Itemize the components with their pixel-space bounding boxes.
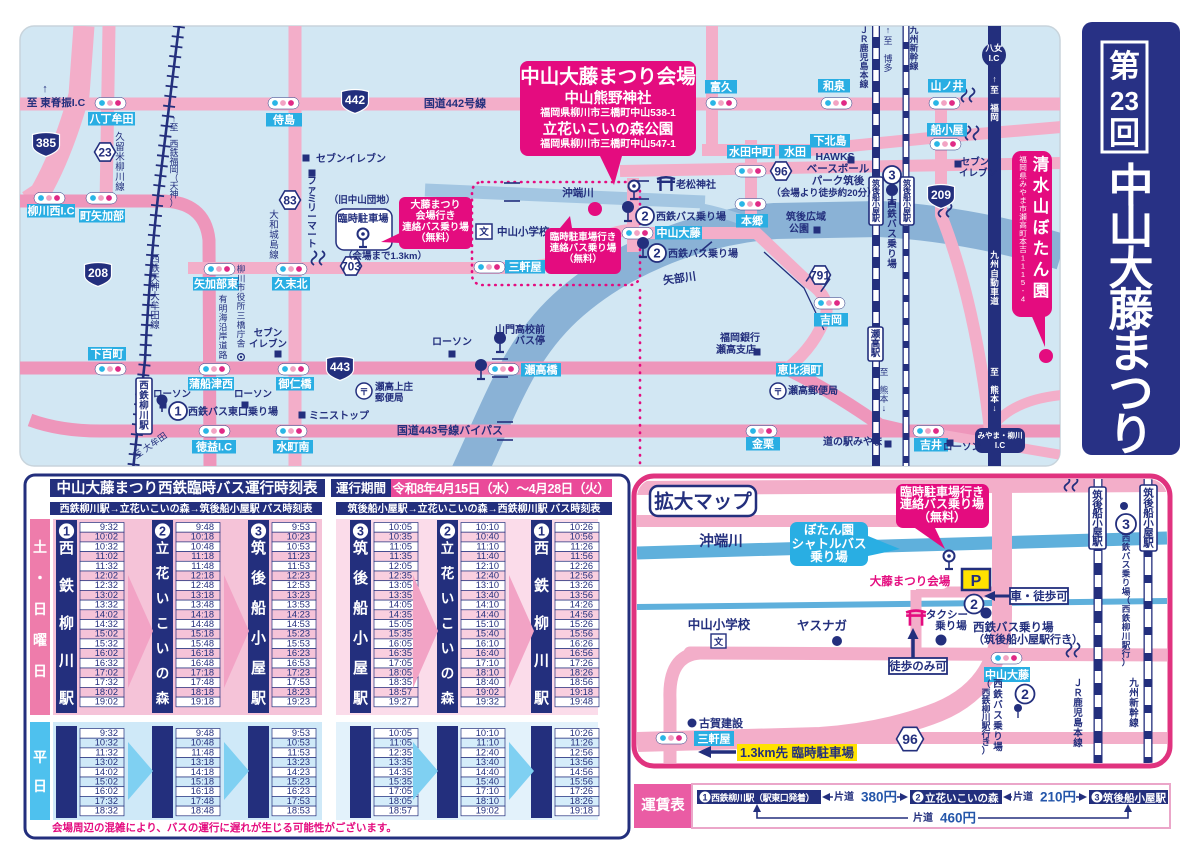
svg-text:柳川西I.C: 柳川西I.C bbox=[27, 204, 74, 218]
svg-text:1: 1 bbox=[702, 793, 707, 803]
svg-text:筑後船小屋駅: 筑後船小屋駅 bbox=[902, 178, 912, 223]
svg-text:徒歩のみ可: 徒歩のみ可 bbox=[888, 659, 947, 673]
svg-text:18:10: 18:10 bbox=[476, 668, 499, 678]
svg-text:イレブン: イレブン bbox=[249, 338, 287, 350]
svg-text:12:35: 12:35 bbox=[389, 571, 412, 581]
svg-text:16:48: 16:48 bbox=[191, 658, 214, 668]
svg-text:国道443号線バイパス: 国道443号線バイパス bbox=[397, 423, 503, 437]
svg-text:11:53: 11:53 bbox=[287, 561, 310, 571]
svg-text:16:18: 16:18 bbox=[191, 786, 214, 796]
svg-text:16:02: 16:02 bbox=[95, 648, 118, 658]
svg-text:18:48: 18:48 bbox=[191, 806, 214, 816]
svg-text:11:48: 11:48 bbox=[191, 747, 214, 757]
svg-text:14:53: 14:53 bbox=[287, 619, 310, 629]
svg-text:14:26: 14:26 bbox=[570, 600, 593, 610]
svg-text:10:32: 10:32 bbox=[95, 541, 118, 551]
svg-text:1.3km先 臨時駐車場: 1.3km先 臨時駐車場 bbox=[740, 745, 854, 760]
svg-text:209: 209 bbox=[931, 188, 951, 202]
svg-text:23: 23 bbox=[1110, 86, 1139, 116]
svg-text:11:10: 11:10 bbox=[476, 541, 499, 551]
svg-text:9:48: 9:48 bbox=[196, 522, 214, 532]
svg-text:15:02: 15:02 bbox=[95, 777, 118, 787]
svg-text:I.C: I.C bbox=[995, 441, 1005, 450]
svg-text:11:23: 11:23 bbox=[287, 551, 310, 561]
svg-text:清水山ぼたん園: 清水山ぼたん園 bbox=[1033, 155, 1050, 300]
svg-text:16:26: 16:26 bbox=[570, 638, 593, 648]
svg-text:↑至 西鉄福岡（天神）: ↑至 西鉄福岡（天神） bbox=[169, 114, 178, 208]
svg-text:12:56: 12:56 bbox=[570, 747, 593, 757]
svg-text:14:32: 14:32 bbox=[95, 619, 118, 629]
svg-text:208: 208 bbox=[88, 266, 108, 280]
svg-text:13:35: 13:35 bbox=[389, 590, 412, 600]
svg-text:セブンイレブン: セブンイレブン bbox=[316, 152, 386, 165]
svg-text:瀬高駅: 瀬高駅 bbox=[871, 329, 881, 360]
svg-text:18:32: 18:32 bbox=[95, 806, 118, 816]
svg-text:16:02: 16:02 bbox=[95, 786, 118, 796]
svg-text:15:10: 15:10 bbox=[476, 619, 499, 629]
svg-text:14:05: 14:05 bbox=[389, 600, 412, 610]
svg-text:14:02: 14:02 bbox=[95, 767, 118, 777]
svg-text:15:18: 15:18 bbox=[191, 777, 214, 787]
svg-text:13:35: 13:35 bbox=[389, 757, 412, 767]
svg-text:中山大藤: 中山大藤 bbox=[657, 226, 702, 240]
svg-text:12:35: 12:35 bbox=[389, 747, 412, 757]
svg-text:13:40: 13:40 bbox=[476, 757, 499, 767]
svg-text:13:18: 13:18 bbox=[191, 757, 214, 767]
svg-text:12:26: 12:26 bbox=[570, 561, 593, 571]
svg-text:（無料）: （無料） bbox=[416, 231, 456, 244]
svg-text:八女: 八女 bbox=[984, 43, 1003, 53]
svg-text:13:56: 13:56 bbox=[570, 757, 593, 767]
svg-text:18:10: 18:10 bbox=[476, 796, 499, 806]
svg-text:13:32: 13:32 bbox=[95, 600, 118, 610]
svg-text:17:02: 17:02 bbox=[95, 668, 118, 678]
svg-text:18:02: 18:02 bbox=[95, 687, 118, 697]
svg-text:17:53: 17:53 bbox=[287, 796, 310, 806]
svg-text:15:26: 15:26 bbox=[570, 619, 593, 629]
svg-text:15:40: 15:40 bbox=[476, 777, 499, 787]
svg-text:中山小学校: 中山小学校 bbox=[688, 617, 751, 632]
svg-text:福岡銀行: 福岡銀行 bbox=[719, 331, 760, 344]
svg-text:2: 2 bbox=[444, 525, 451, 539]
svg-text:13:02: 13:02 bbox=[95, 590, 118, 600]
svg-text:古賀建設: 古賀建設 bbox=[699, 716, 744, 730]
svg-text:片道: 片道 bbox=[834, 790, 854, 803]
svg-text:乗り場: 乗り場 bbox=[934, 619, 967, 632]
svg-text:12:56: 12:56 bbox=[570, 571, 593, 581]
svg-text:12:40: 12:40 bbox=[476, 747, 499, 757]
svg-text:15:18: 15:18 bbox=[191, 629, 214, 639]
svg-text:19:27: 19:27 bbox=[389, 697, 412, 707]
svg-text:19:32: 19:32 bbox=[476, 697, 499, 707]
svg-text:中山大藤: 中山大藤 bbox=[985, 667, 1030, 681]
svg-text:西鉄バス東口乗り場: 西鉄バス東口乗り場 bbox=[188, 405, 278, 418]
svg-text:徳益I.C: 徳益I.C bbox=[195, 440, 232, 454]
svg-text:三軒屋: 三軒屋 bbox=[509, 260, 542, 274]
svg-text:16:23: 16:23 bbox=[287, 786, 310, 796]
svg-text:筑後船小屋駅: 筑後船小屋駅 bbox=[1091, 489, 1103, 549]
svg-text:12:48: 12:48 bbox=[191, 580, 214, 590]
svg-text:連絡バス乗り場: 連絡バス乗り場 bbox=[402, 221, 469, 233]
svg-text:13:56: 13:56 bbox=[570, 590, 593, 600]
svg-text:13:02: 13:02 bbox=[95, 757, 118, 767]
svg-text:96: 96 bbox=[902, 731, 918, 747]
svg-text:瀬高郵便局: 瀬高郵便局 bbox=[788, 384, 838, 397]
svg-text:蒲船津西: 蒲船津西 bbox=[189, 377, 233, 391]
svg-text:14:18: 14:18 bbox=[191, 767, 214, 777]
svg-text:下百町: 下百町 bbox=[91, 348, 124, 361]
svg-text:金栗: 金栗 bbox=[751, 437, 774, 451]
svg-text:本郷: 本郷 bbox=[741, 214, 763, 228]
svg-text:1: 1 bbox=[63, 525, 70, 539]
svg-text:11:10: 11:10 bbox=[476, 738, 499, 748]
svg-text:↑: ↑ bbox=[886, 25, 891, 35]
svg-text:ヤスナガ: ヤスナガ bbox=[797, 618, 848, 633]
svg-text:12:18: 12:18 bbox=[191, 571, 214, 581]
svg-text:442: 442 bbox=[345, 93, 365, 107]
svg-text:96: 96 bbox=[774, 164, 788, 178]
svg-text:ローソン: ローソン bbox=[234, 389, 272, 400]
svg-text:3: 3 bbox=[255, 525, 262, 539]
svg-text:14:40: 14:40 bbox=[476, 609, 499, 619]
svg-text:16:53: 16:53 bbox=[287, 658, 310, 668]
svg-text:12:05: 12:05 bbox=[389, 561, 412, 571]
svg-text:14:35: 14:35 bbox=[389, 609, 412, 619]
svg-text:15:56: 15:56 bbox=[570, 629, 593, 639]
svg-text:18:23: 18:23 bbox=[287, 687, 310, 697]
svg-text:国道442号線: 国道442号線 bbox=[424, 96, 486, 110]
svg-text:10:56: 10:56 bbox=[570, 532, 593, 542]
svg-text:15:40: 15:40 bbox=[476, 629, 499, 639]
svg-text:セブン: セブン bbox=[254, 327, 283, 339]
svg-text:至 東脊振I.C: 至 東脊振I.C bbox=[27, 96, 86, 109]
svg-text:シャトルバス: シャトルバス bbox=[791, 537, 866, 551]
svg-text:17:26: 17:26 bbox=[570, 786, 593, 796]
svg-text:19:18: 19:18 bbox=[570, 687, 593, 697]
svg-text:9:32: 9:32 bbox=[100, 728, 118, 738]
svg-text:10:32: 10:32 bbox=[95, 738, 118, 748]
svg-text:3: 3 bbox=[1122, 516, 1130, 532]
svg-text:筑後広域: 筑後広域 bbox=[786, 210, 826, 223]
svg-text:西鉄バス乗り場: 西鉄バス乗り場 bbox=[993, 679, 1003, 753]
svg-text:11:32: 11:32 bbox=[95, 747, 118, 757]
svg-text:ローソン: ローソン bbox=[432, 337, 472, 348]
svg-text:10:10: 10:10 bbox=[476, 728, 499, 738]
svg-text:中山大藤まつり会場: 中山大藤まつり会場 bbox=[520, 65, 696, 88]
svg-text:210円: 210円 bbox=[1040, 790, 1076, 805]
svg-text:パーク筑後: パーク筑後 bbox=[812, 174, 865, 187]
svg-text:至 福岡: 至 福岡 bbox=[989, 85, 999, 122]
svg-text:14:23: 14:23 bbox=[287, 609, 310, 619]
svg-text:西鉄柳川駅: 西鉄柳川駅 bbox=[138, 381, 149, 432]
svg-text:15:23: 15:23 bbox=[287, 777, 310, 787]
svg-text:12:02: 12:02 bbox=[95, 571, 118, 581]
svg-text:16:05: 16:05 bbox=[389, 638, 412, 648]
svg-text:西鉄柳川駅→立花いこいの森→筑後船小屋駅 バス時刻表: 西鉄柳川駅→立花いこいの森→筑後船小屋駅 バス時刻表 bbox=[60, 502, 314, 515]
svg-text:運行期間: 運行期間 bbox=[336, 481, 386, 496]
svg-text:18:40: 18:40 bbox=[476, 677, 499, 687]
svg-text:西鉄柳川駅（駅東口発着）: 西鉄柳川駅（駅東口発着） bbox=[711, 792, 814, 803]
svg-text:12:32: 12:32 bbox=[95, 580, 118, 590]
svg-text:19:02: 19:02 bbox=[476, 806, 499, 816]
svg-text:瀬高上庄: 瀬高上庄 bbox=[375, 381, 414, 393]
svg-text:ファミリーマート: ファミリーマート bbox=[307, 176, 317, 250]
svg-text:回: 回 bbox=[1109, 116, 1140, 151]
svg-text:14:02: 14:02 bbox=[95, 609, 118, 619]
svg-text:11:02: 11:02 bbox=[95, 551, 118, 561]
svg-text:会場周辺の混雑により、バスの運行に遅れが生じる可能性がござい: 会場周辺の混雑により、バスの運行に遅れが生じる可能性がございます。 bbox=[52, 821, 397, 834]
svg-text:中山小学校: 中山小学校 bbox=[497, 225, 550, 238]
svg-text:（会場より徒歩約20分）: （会場より徒歩約20分） bbox=[771, 187, 876, 199]
svg-text:車・徒歩可: 車・徒歩可 bbox=[1010, 589, 1068, 603]
svg-text:富久: 富久 bbox=[710, 80, 733, 94]
svg-text:14:56: 14:56 bbox=[570, 609, 593, 619]
svg-text:15:32: 15:32 bbox=[95, 638, 118, 648]
svg-text:18:53: 18:53 bbox=[287, 806, 310, 816]
svg-text:15:48: 15:48 bbox=[191, 638, 214, 648]
svg-text:18:18: 18:18 bbox=[191, 687, 214, 697]
svg-text:I.C: I.C bbox=[989, 53, 1000, 63]
svg-text:19:02: 19:02 bbox=[95, 697, 118, 707]
svg-text:10:48: 10:48 bbox=[191, 541, 214, 551]
svg-text:2: 2 bbox=[641, 209, 648, 224]
svg-text:至 博多: 至 博多 bbox=[883, 36, 892, 73]
svg-text:11:18: 11:18 bbox=[191, 551, 214, 561]
svg-text:（西鉄柳川駅行き）: （西鉄柳川駅行き） bbox=[981, 679, 991, 755]
svg-text:水町南: 水町南 bbox=[277, 440, 310, 454]
svg-text:10:26: 10:26 bbox=[570, 522, 593, 532]
svg-text:17:32: 17:32 bbox=[95, 796, 118, 806]
svg-text:10:40: 10:40 bbox=[476, 532, 499, 542]
svg-text:12:53: 12:53 bbox=[287, 580, 310, 590]
svg-text:19:18: 19:18 bbox=[570, 806, 593, 816]
svg-text:3: 3 bbox=[357, 525, 364, 539]
svg-text:13:53: 13:53 bbox=[287, 600, 310, 610]
svg-text:（無料）: （無料） bbox=[918, 509, 966, 524]
svg-text:ミニストップ: ミニストップ bbox=[309, 409, 370, 422]
svg-text:九州新幹線: 九州新幹線 bbox=[1128, 677, 1139, 729]
svg-text:9:53: 9:53 bbox=[292, 728, 310, 738]
svg-text:10:05: 10:05 bbox=[389, 728, 412, 738]
svg-text:11:32: 11:32 bbox=[95, 561, 118, 571]
svg-text:9:48: 9:48 bbox=[196, 728, 214, 738]
svg-text:17:10: 17:10 bbox=[476, 786, 499, 796]
svg-text:西鉄バス乗り場: 西鉄バス乗り場 bbox=[887, 199, 897, 270]
svg-text:10:18: 10:18 bbox=[191, 532, 214, 542]
svg-text:15:35: 15:35 bbox=[389, 629, 412, 639]
svg-text:中山大藤まつり: 中山大藤まつり bbox=[1108, 160, 1153, 460]
svg-text:11:26: 11:26 bbox=[570, 541, 593, 551]
svg-text:15:23: 15:23 bbox=[287, 629, 310, 639]
svg-text:10:35: 10:35 bbox=[389, 532, 412, 542]
svg-text:大藤まつり: 大藤まつり bbox=[411, 198, 461, 211]
svg-text:83: 83 bbox=[283, 193, 297, 207]
svg-text:運賃表: 運賃表 bbox=[641, 796, 685, 814]
svg-text:ベースボール: ベースボール bbox=[807, 162, 870, 175]
svg-text:10:53: 10:53 bbox=[287, 541, 310, 551]
svg-text:↑: ↑ bbox=[42, 83, 48, 95]
svg-text:14:18: 14:18 bbox=[191, 609, 214, 619]
svg-text:吉井: 吉井 bbox=[920, 438, 942, 452]
svg-text:〒: 〒 bbox=[359, 387, 368, 397]
svg-text:文: 文 bbox=[478, 226, 489, 238]
svg-text:中山大藤まつり西鉄臨時バス運行時刻表: 中山大藤まつり西鉄臨時バス運行時刻表 bbox=[57, 479, 318, 497]
svg-text:臨時駐車場行き: 臨時駐車場行き bbox=[550, 231, 617, 243]
svg-text:（旧中山団地）: （旧中山団地） bbox=[329, 194, 396, 206]
svg-text:16:18: 16:18 bbox=[191, 648, 214, 658]
svg-text:連絡バス乗り場: 連絡バス乗り場 bbox=[900, 496, 984, 511]
svg-text:385: 385 bbox=[36, 136, 56, 150]
svg-text:和泉: 和泉 bbox=[823, 79, 846, 93]
svg-text:10:02: 10:02 bbox=[95, 532, 118, 542]
svg-text:18:05: 18:05 bbox=[389, 796, 412, 806]
svg-text:会場行き: 会場行き bbox=[416, 209, 456, 222]
svg-text:11:53: 11:53 bbox=[287, 747, 310, 757]
svg-text:片道: 片道 bbox=[913, 811, 933, 824]
svg-text:14:23: 14:23 bbox=[287, 767, 310, 777]
svg-text:18:26: 18:26 bbox=[570, 668, 593, 678]
svg-text:10:23: 10:23 bbox=[287, 532, 310, 542]
svg-text:臨時駐車場: 臨時駐車場 bbox=[338, 212, 389, 225]
svg-text:17:48: 17:48 bbox=[191, 677, 214, 687]
svg-text:公園: 公園 bbox=[789, 223, 809, 235]
svg-text:14:40: 14:40 bbox=[476, 767, 499, 777]
svg-text:17:05: 17:05 bbox=[389, 786, 412, 796]
svg-text:16:10: 16:10 bbox=[476, 638, 499, 648]
svg-text:13:10: 13:10 bbox=[476, 580, 499, 590]
svg-text:ＪＲ鹿児島本線: ＪＲ鹿児島本線 bbox=[1072, 678, 1083, 749]
svg-text:11:26: 11:26 bbox=[570, 738, 593, 748]
svg-text:三軒屋: 三軒屋 bbox=[698, 731, 731, 745]
svg-text:1: 1 bbox=[538, 525, 545, 539]
svg-text:下北島: 下北島 bbox=[814, 134, 847, 148]
svg-text:10:26: 10:26 bbox=[570, 728, 593, 738]
svg-text:西鉄バス乗り場（西鉄柳川駅行）: 西鉄バス乗り場（西鉄柳川駅行） bbox=[1121, 533, 1131, 668]
svg-text:460円: 460円 bbox=[940, 811, 976, 826]
svg-text:山ノ井: 山ノ井 bbox=[931, 79, 964, 93]
svg-text:（会場まで1.3km）: （会場まで1.3km） bbox=[343, 250, 427, 262]
svg-text:恵比須町: 恵比須町 bbox=[778, 363, 822, 377]
svg-text:水田: 水田 bbox=[784, 145, 806, 159]
svg-text:久末北: 久末北 bbox=[275, 277, 308, 291]
svg-text:2: 2 bbox=[653, 246, 660, 261]
svg-text:9:32: 9:32 bbox=[100, 522, 118, 532]
svg-text:水田中町: 水田中町 bbox=[729, 145, 773, 159]
svg-text:18:35: 18:35 bbox=[389, 677, 412, 687]
svg-text:九州新幹線: 九州新幹線 bbox=[909, 24, 919, 71]
svg-text:みやま・柳川: みやま・柳川 bbox=[978, 430, 1023, 440]
svg-text:瀬高支店: 瀬高支店 bbox=[716, 343, 756, 356]
svg-text:13:26: 13:26 bbox=[570, 580, 593, 590]
svg-text:連絡バス乗り場: 連絡バス乗り場 bbox=[550, 242, 617, 254]
svg-text:3: 3 bbox=[1094, 793, 1099, 803]
svg-text:P: P bbox=[971, 573, 982, 590]
svg-text:筑後船小屋駅: 筑後船小屋駅 bbox=[1142, 487, 1154, 550]
svg-text:文: 文 bbox=[713, 636, 724, 647]
svg-text:17:53: 17:53 bbox=[287, 677, 310, 687]
svg-text:2: 2 bbox=[1021, 686, 1029, 702]
svg-text:乗り場: 乗り場 bbox=[809, 549, 848, 564]
svg-text:15:02: 15:02 bbox=[95, 629, 118, 639]
svg-text:14:56: 14:56 bbox=[570, 767, 593, 777]
svg-text:17:18: 17:18 bbox=[191, 668, 214, 678]
svg-text:12:10: 12:10 bbox=[476, 561, 499, 571]
svg-text:10:10: 10:10 bbox=[476, 522, 499, 532]
svg-text:11:40: 11:40 bbox=[476, 551, 499, 561]
svg-text:11:05: 11:05 bbox=[389, 738, 412, 748]
svg-text:片道: 片道 bbox=[1013, 790, 1033, 803]
svg-text:九州自動車道: 九州自動車道 bbox=[989, 249, 999, 306]
svg-text:14:10: 14:10 bbox=[476, 600, 499, 610]
svg-text:筑後船小屋駅: 筑後船小屋駅 bbox=[1102, 792, 1166, 805]
svg-text:13:18: 13:18 bbox=[191, 590, 214, 600]
svg-text:拡大マップ: 拡大マップ bbox=[654, 490, 752, 513]
svg-text:14:35: 14:35 bbox=[389, 767, 412, 777]
svg-text:17:48: 17:48 bbox=[191, 796, 214, 806]
svg-text:ＪＲ鹿児島本線: ＪＲ鹿児島本線 bbox=[859, 25, 869, 89]
svg-text:西鉄バス乗り場: 西鉄バス乗り場 bbox=[656, 210, 726, 223]
svg-text:17:10: 17:10 bbox=[476, 658, 499, 668]
svg-text:10:05: 10:05 bbox=[389, 522, 412, 532]
svg-text:吉岡: 吉岡 bbox=[820, 313, 842, 327]
svg-text:有明海沿岸道路: 有明海沿岸道路 bbox=[219, 293, 228, 360]
svg-text:18:05: 18:05 bbox=[389, 668, 412, 678]
svg-text:バス停: バス停 bbox=[515, 334, 545, 347]
svg-text:御仁橋: 御仁橋 bbox=[278, 377, 313, 391]
svg-text:2: 2 bbox=[915, 793, 920, 803]
svg-text:沖端川: 沖端川 bbox=[699, 532, 743, 550]
svg-text:9:53: 9:53 bbox=[292, 522, 310, 532]
svg-text:380円: 380円 bbox=[861, 790, 897, 805]
svg-text:13:23: 13:23 bbox=[287, 590, 310, 600]
svg-text:令和8年4月15日（水）〜4月28日（火）: 令和8年4月15日（水）〜4月28日（火） bbox=[393, 481, 610, 496]
svg-text:17:32: 17:32 bbox=[95, 677, 118, 687]
svg-text:23: 23 bbox=[98, 145, 112, 159]
svg-text:大藤まつり会場: 大藤まつり会場 bbox=[870, 574, 951, 588]
svg-text:18:26: 18:26 bbox=[570, 796, 593, 806]
svg-text:町矢加部: 町矢加部 bbox=[80, 209, 124, 223]
svg-text:沖端川: 沖端川 bbox=[562, 186, 594, 199]
svg-text:西鉄バス乗り場: 西鉄バス乗り場 bbox=[973, 620, 1054, 634]
svg-text:西鉄天神大牟田線: 西鉄天神大牟田線 bbox=[150, 254, 160, 331]
svg-text:西鉄バス乗り場: 西鉄バス乗り場 bbox=[668, 247, 738, 260]
svg-text:17:23: 17:23 bbox=[287, 668, 310, 678]
svg-text:福岡県柳川市三橋町中山547-1: 福岡県柳川市三橋町中山547-1 bbox=[539, 137, 676, 150]
svg-text:443: 443 bbox=[330, 360, 350, 374]
svg-text:筑後船小屋駅→立花いこいの森→西鉄柳川駅 バス時刻表: 筑後船小屋駅→立花いこいの森→西鉄柳川駅 バス時刻表 bbox=[348, 502, 602, 515]
svg-text:郵便局: 郵便局 bbox=[375, 392, 404, 404]
svg-text:老松神社: 老松神社 bbox=[675, 178, 716, 191]
svg-text:11:56: 11:56 bbox=[570, 551, 593, 561]
svg-text:立花いこいの森公園: 立花いこいの森公園 bbox=[543, 120, 674, 138]
svg-text:13:05: 13:05 bbox=[389, 580, 412, 590]
svg-text:16:35: 16:35 bbox=[389, 648, 412, 658]
svg-text:〒: 〒 bbox=[773, 387, 782, 397]
svg-text:18:57: 18:57 bbox=[389, 806, 412, 816]
svg-text:大和城島線: 大和城島線 bbox=[269, 209, 279, 261]
svg-text:イレブン: イレブン bbox=[959, 167, 997, 179]
svg-text:福岡県柳川市三橋町中山538-1: 福岡県柳川市三橋町中山538-1 bbox=[539, 106, 676, 119]
svg-text:10:48: 10:48 bbox=[191, 738, 214, 748]
svg-text:久留米柳川線: 久留米柳川線 bbox=[115, 131, 125, 193]
svg-text:1: 1 bbox=[174, 404, 181, 419]
svg-text:19:18: 19:18 bbox=[191, 697, 214, 707]
svg-text:15:05: 15:05 bbox=[389, 619, 412, 629]
svg-text:ぼたん園: ぼたん園 bbox=[804, 523, 854, 537]
svg-text:19:23: 19:23 bbox=[287, 697, 310, 707]
svg-text:791: 791 bbox=[810, 268, 830, 282]
svg-text:11:05: 11:05 bbox=[389, 541, 412, 551]
